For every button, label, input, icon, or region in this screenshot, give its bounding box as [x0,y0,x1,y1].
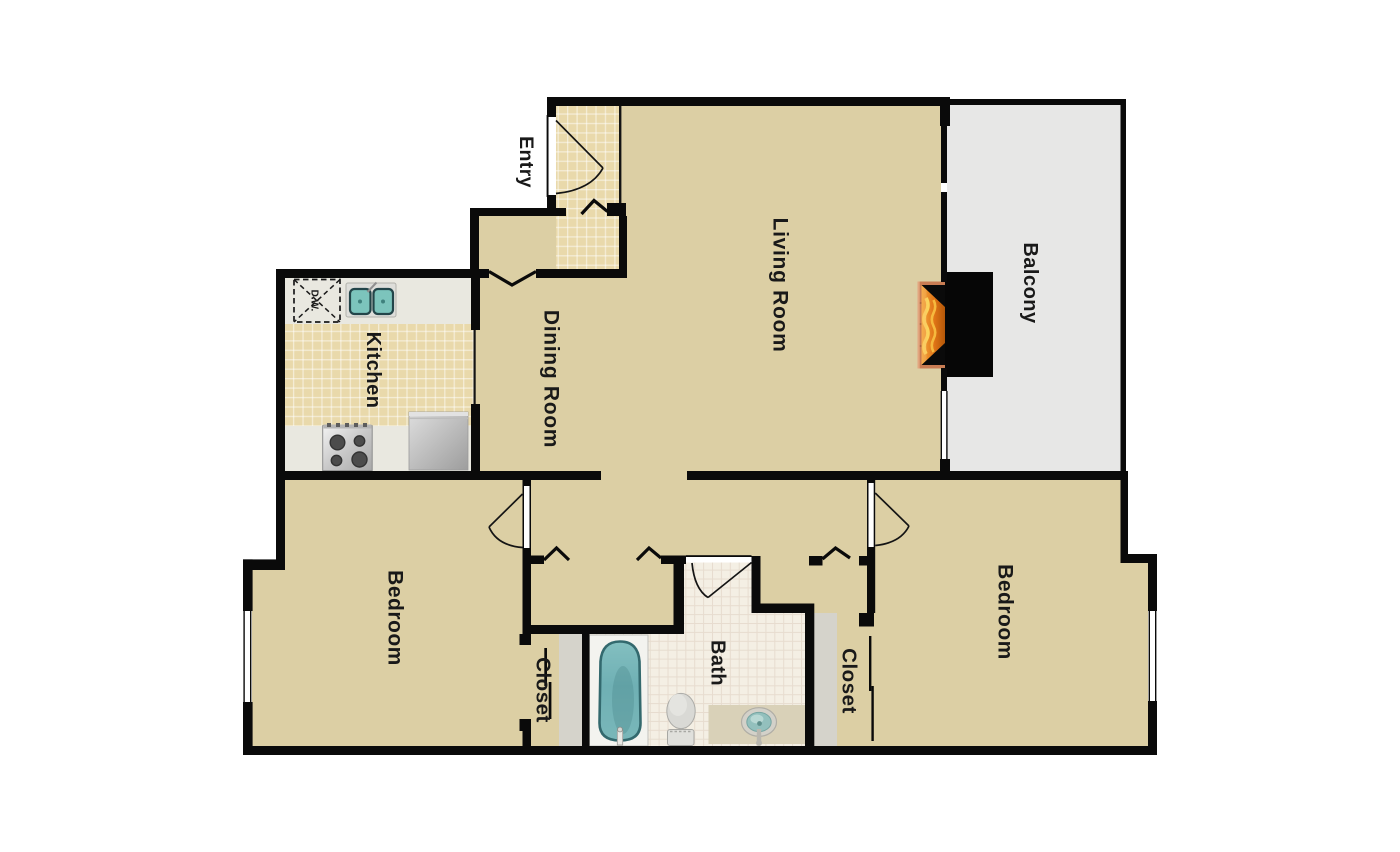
svg-text:Living Room: Living Room [769,218,792,353]
svg-text:Entry: Entry [515,136,537,188]
svg-text:Bedroom: Bedroom [994,564,1017,660]
svg-text:Balcony: Balcony [1019,242,1041,324]
svg-text:Bath: Bath [707,640,729,686]
svg-text:Bedroom: Bedroom [384,570,407,666]
svg-text:Closet: Closet [532,657,555,723]
svg-text:Closet: Closet [838,648,861,714]
svg-text:D.W.: D.W. [309,290,320,312]
svg-text:Kitchen: Kitchen [362,332,384,409]
svg-text:Dining Room: Dining Room [540,310,563,448]
